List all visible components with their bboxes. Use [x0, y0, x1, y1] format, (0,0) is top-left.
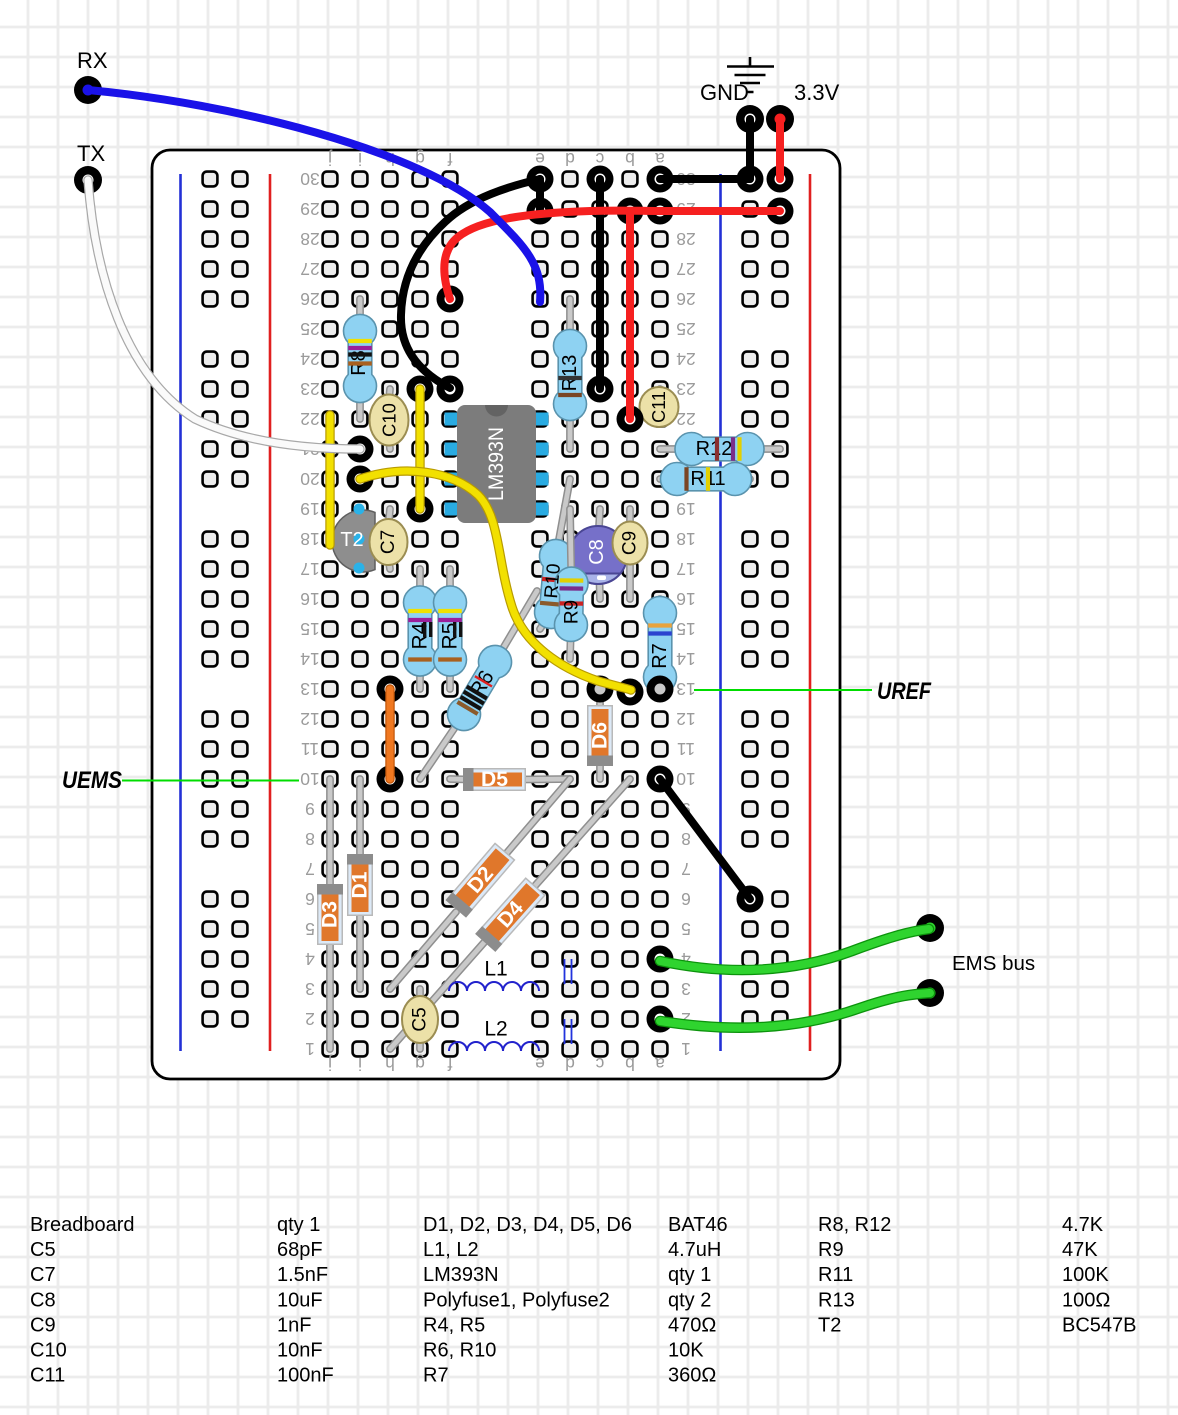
svg-text:18: 18	[300, 529, 319, 549]
svg-text:C11: C11	[30, 1365, 65, 1387]
svg-text:BAT46: BAT46	[668, 1214, 728, 1236]
svg-text:D6: D6	[589, 722, 612, 749]
svg-text:L1: L1	[484, 958, 507, 981]
svg-text:10uF: 10uF	[277, 1289, 323, 1311]
svg-text:C7: C7	[378, 530, 399, 554]
svg-text:D1: D1	[349, 871, 372, 898]
svg-text:3: 3	[681, 979, 691, 999]
svg-text:27: 27	[676, 259, 695, 279]
svg-text:47K: 47K	[1062, 1239, 1098, 1261]
svg-text:23: 23	[300, 379, 319, 399]
svg-text:25: 25	[676, 319, 695, 339]
svg-text:C9: C9	[30, 1314, 56, 1336]
svg-text:L1, L2: L1, L2	[423, 1239, 479, 1261]
svg-text:1: 1	[305, 1039, 315, 1059]
svg-text:R12: R12	[696, 438, 733, 460]
svg-text:100nF: 100nF	[277, 1365, 334, 1387]
svg-text:11: 11	[677, 739, 695, 759]
svg-text:R9: R9	[818, 1239, 844, 1261]
svg-text:UEMS: UEMS	[62, 767, 122, 794]
svg-text:R8, R12: R8, R12	[818, 1214, 891, 1236]
svg-text:j: j	[328, 149, 333, 169]
svg-text:100Ω: 100Ω	[1062, 1289, 1110, 1311]
svg-text:19: 19	[676, 499, 695, 519]
svg-text:10: 10	[300, 769, 320, 789]
svg-text:R5: R5	[439, 623, 462, 650]
svg-text:T2: T2	[340, 529, 363, 551]
svg-text:Breadboard: Breadboard	[30, 1214, 135, 1236]
svg-text:4.7uH: 4.7uH	[668, 1239, 721, 1261]
svg-text:a: a	[655, 1054, 665, 1074]
svg-text:C5: C5	[30, 1239, 56, 1261]
svg-text:Polyfuse1, Polyfuse2: Polyfuse1, Polyfuse2	[423, 1289, 610, 1311]
svg-text:i: i	[358, 1054, 362, 1074]
svg-text:26: 26	[300, 289, 319, 309]
svg-text:g: g	[415, 1054, 425, 1074]
svg-text:3: 3	[305, 979, 315, 999]
svg-text:13: 13	[676, 679, 695, 699]
svg-text:360Ω: 360Ω	[668, 1365, 716, 1387]
svg-text:22: 22	[676, 409, 695, 429]
svg-text:15: 15	[676, 619, 695, 639]
svg-text:f: f	[447, 1054, 452, 1074]
svg-text:20: 20	[300, 469, 320, 489]
svg-text:18: 18	[676, 529, 695, 549]
svg-text:23: 23	[676, 379, 695, 399]
svg-text:14: 14	[300, 649, 320, 669]
svg-text:25: 25	[300, 319, 319, 339]
svg-text:D1, D2, D3, D4, D5, D6: D1, D2, D3, D4, D5, D6	[423, 1214, 632, 1236]
svg-text:10K: 10K	[668, 1340, 704, 1362]
svg-text:d: d	[565, 149, 575, 169]
svg-text:GND: GND	[700, 80, 749, 105]
svg-text:6: 6	[681, 889, 691, 909]
svg-text:C5: C5	[410, 1007, 431, 1031]
svg-text:EMS bus: EMS bus	[952, 952, 1035, 975]
svg-text:h: h	[385, 1054, 395, 1074]
svg-text:qty 2: qty 2	[668, 1289, 711, 1311]
svg-text:C8: C8	[30, 1289, 56, 1311]
svg-text:b: b	[625, 1054, 635, 1074]
svg-text:R11: R11	[818, 1264, 853, 1286]
svg-text:R13: R13	[818, 1289, 855, 1311]
svg-text:b: b	[625, 149, 635, 169]
svg-text:30: 30	[300, 169, 320, 189]
svg-text:22: 22	[300, 409, 319, 429]
svg-text:24: 24	[676, 349, 696, 369]
svg-text:RX: RX	[77, 48, 108, 73]
svg-text:14: 14	[676, 649, 696, 669]
svg-text:C11: C11	[649, 391, 669, 423]
svg-text:5: 5	[305, 919, 315, 939]
svg-text:D3: D3	[319, 901, 342, 928]
svg-text:7: 7	[681, 859, 691, 879]
svg-text:qty 1: qty 1	[668, 1264, 711, 1286]
svg-text:7: 7	[305, 859, 315, 879]
svg-text:R6, R10: R6, R10	[423, 1340, 496, 1362]
svg-text:C8: C8	[586, 539, 608, 565]
svg-text:R7: R7	[423, 1365, 449, 1387]
svg-text:BC547B: BC547B	[1062, 1314, 1137, 1336]
svg-text:e: e	[535, 1054, 545, 1074]
svg-text:j: j	[328, 1054, 333, 1074]
svg-text:16: 16	[676, 589, 695, 609]
svg-text:17: 17	[300, 559, 319, 579]
svg-text:R7: R7	[649, 643, 671, 669]
svg-text:8: 8	[305, 829, 315, 849]
svg-text:28: 28	[676, 229, 695, 249]
svg-text:10: 10	[676, 769, 696, 789]
svg-text:R10: R10	[541, 563, 565, 600]
svg-text:3.3V: 3.3V	[794, 80, 840, 105]
svg-text:f: f	[447, 149, 452, 169]
svg-text:19: 19	[300, 499, 319, 519]
svg-text:11: 11	[301, 739, 319, 759]
svg-text:C9: C9	[620, 531, 641, 555]
svg-text:17: 17	[676, 559, 695, 579]
svg-text:D5: D5	[481, 768, 508, 791]
svg-text:12: 12	[676, 709, 695, 729]
svg-text:LM393N: LM393N	[423, 1264, 499, 1286]
svg-text:470Ω: 470Ω	[668, 1314, 716, 1336]
svg-text:100K: 100K	[1062, 1264, 1109, 1286]
svg-text:C10: C10	[379, 403, 400, 437]
svg-text:TX: TX	[77, 141, 105, 166]
svg-text:R4, R5: R4, R5	[423, 1314, 485, 1336]
svg-text:15: 15	[300, 619, 319, 639]
svg-text:1.5nF: 1.5nF	[277, 1264, 328, 1286]
svg-text:UREF: UREF	[877, 678, 932, 705]
svg-text:R4: R4	[409, 622, 432, 649]
svg-text:5: 5	[681, 919, 691, 939]
svg-text:27: 27	[300, 259, 319, 279]
svg-text:2: 2	[305, 1009, 315, 1029]
svg-text:qty 1: qty 1	[277, 1214, 320, 1236]
svg-text:24: 24	[300, 349, 320, 369]
svg-text:L2: L2	[484, 1018, 507, 1041]
svg-text:68pF: 68pF	[277, 1239, 323, 1261]
svg-text:28: 28	[300, 229, 319, 249]
svg-text:26: 26	[676, 289, 695, 309]
svg-text:R13: R13	[559, 355, 581, 392]
svg-text:6: 6	[305, 889, 315, 909]
svg-text:d: d	[565, 1054, 575, 1074]
svg-text:12: 12	[300, 709, 319, 729]
svg-text:i: i	[358, 149, 362, 169]
svg-text:c: c	[595, 1054, 604, 1074]
svg-text:16: 16	[300, 589, 319, 609]
svg-text:4: 4	[305, 949, 315, 969]
svg-text:1: 1	[681, 1039, 691, 1059]
svg-text:LM393N: LM393N	[485, 427, 508, 501]
svg-text:4.7K: 4.7K	[1062, 1214, 1104, 1236]
svg-text:R9: R9	[562, 600, 583, 624]
svg-text:8: 8	[681, 829, 691, 849]
svg-text:29: 29	[300, 199, 319, 219]
svg-text:13: 13	[300, 679, 319, 699]
svg-text:1nF: 1nF	[277, 1314, 311, 1336]
svg-text:T2: T2	[818, 1314, 841, 1336]
svg-text:C10: C10	[30, 1340, 67, 1362]
svg-text:9: 9	[305, 799, 315, 819]
svg-text:C7: C7	[30, 1264, 56, 1286]
svg-text:10nF: 10nF	[277, 1340, 323, 1362]
